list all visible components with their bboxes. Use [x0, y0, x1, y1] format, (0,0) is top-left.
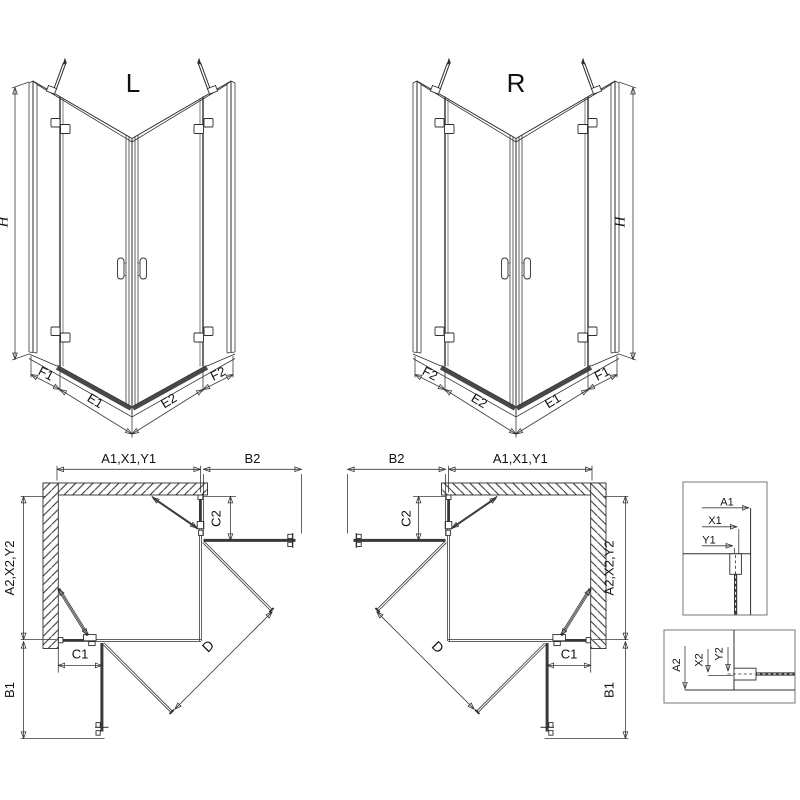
label-c2-right: C2	[399, 510, 414, 527]
label-c2-left: C2	[209, 510, 224, 527]
door-open-45	[103, 541, 274, 714]
label-a1-detail: A1	[720, 497, 733, 509]
drawing-canvas: L H F1 E1 E2 F2 R H F2 E2 E1 F1	[0, 0, 800, 800]
label-c1-right: C1	[561, 647, 578, 662]
support-bar-right	[197, 58, 218, 95]
label-height-left: H	[0, 215, 12, 228]
shower-enclosure-technical-drawing: L H F1 E1 E2 F2 R H F2 E2 E1 F1	[0, 0, 800, 800]
plan-dimensions	[21, 466, 302, 739]
support-bars-plan	[58, 496, 198, 636]
plan-view-geometry	[21, 466, 302, 739]
label-b1-right: B1	[602, 682, 617, 698]
detail-view-top: A1 X1 Y1	[683, 482, 767, 615]
label-b1-left: B1	[2, 682, 17, 698]
label-f2-right: F2	[420, 363, 440, 383]
support-bar-left	[46, 58, 67, 95]
label-b2-left: B2	[244, 451, 260, 466]
wall-hatch-side	[43, 483, 58, 649]
label-c1-left: C1	[72, 647, 89, 662]
label-width-top-right: A1,X1,Y1	[493, 451, 548, 466]
label-a2-detail: A2	[671, 658, 683, 671]
label-y2-detail: Y2	[714, 647, 726, 660]
label-depth-left: A2,X2,Y2	[2, 541, 17, 596]
label-b2-right: B2	[389, 451, 405, 466]
label-f1-left: F1	[36, 363, 56, 383]
iso-view-left-labels: L H F1 E1 E2 F2	[0, 68, 228, 411]
label-width-top-left: A1,X1,Y1	[101, 451, 156, 466]
plan-view-right-geometry	[348, 466, 629, 739]
label-x2-detail: X2	[694, 653, 706, 666]
detail-view-bottom: A2 X2 Y2	[664, 630, 795, 703]
dimension-height	[12, 82, 29, 360]
label-height-right: H	[613, 215, 629, 228]
label-depth-right: A2,X2,Y2	[602, 541, 617, 596]
label-f2-left: F2	[208, 363, 228, 383]
label-d-right: D	[429, 638, 447, 656]
variant-title-left: L	[126, 68, 140, 98]
label-f1-right: F1	[592, 363, 612, 383]
variant-title-right: R	[507, 68, 526, 98]
fixed-panel-right-profile	[227, 81, 235, 353]
door-open-90	[95, 533, 296, 735]
fixed-panel-left-profile	[29, 81, 37, 353]
corner-door-edges	[126, 135, 138, 410]
label-x1-detail: X1	[708, 515, 721, 527]
wall-hatch-top	[43, 483, 208, 495]
label-y1-detail: Y1	[702, 535, 715, 547]
